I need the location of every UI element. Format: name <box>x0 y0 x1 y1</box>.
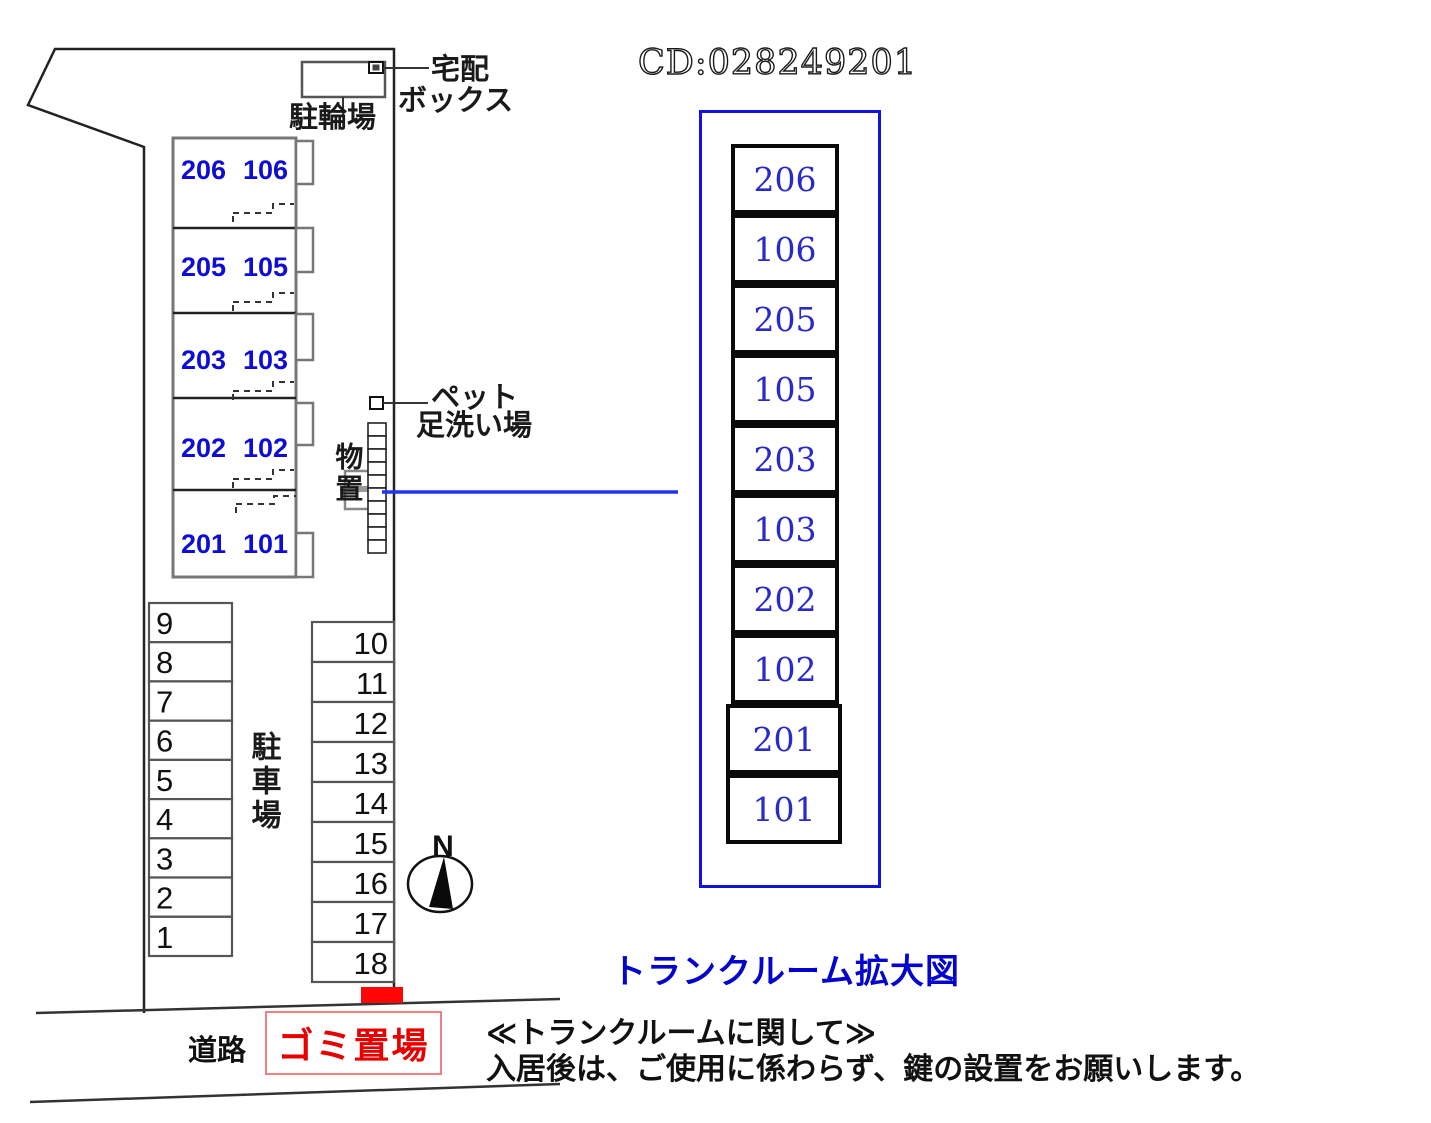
trunk-strip-cell <box>368 449 386 462</box>
trunk-strip-cell <box>368 488 386 501</box>
unit-number: 205 <box>181 252 226 283</box>
unit-porch <box>296 141 313 184</box>
trunk-view-cell-number: 203 <box>754 440 817 479</box>
unit-row-label: 201101 <box>173 529 296 559</box>
unit-number: 106 <box>243 155 288 186</box>
trunk-view-cell: 102 <box>731 634 839 704</box>
parking-stall-number: 10 <box>354 626 388 661</box>
road-lower-line <box>30 1084 560 1102</box>
site-plan-page: 987654321 101112131415161718 N CD:028249… <box>0 0 1431 1123</box>
parking-stall-number: 5 <box>156 763 173 798</box>
parking-lot-label: 駐車場 <box>247 731 279 833</box>
bicycle-parking-label: 駐輪場 <box>289 103 376 133</box>
unit-row-label: 205105 <box>173 252 296 282</box>
parking-stalls-right: 101112131415161718 <box>312 622 394 982</box>
trunk-view-cell: 103 <box>731 494 839 564</box>
trunk-view-cell: 202 <box>731 564 839 634</box>
trunk-view-cell: 203 <box>731 424 839 494</box>
compass-needle <box>429 857 453 909</box>
trunk-strip-cell <box>368 475 386 488</box>
parking-stall-number: 2 <box>156 881 173 916</box>
trunk-view-cell: 205 <box>731 284 839 354</box>
unit-number: 203 <box>181 345 226 376</box>
trunk-view-cell-number: 106 <box>754 230 817 269</box>
trunk-view-box: 206106205105203103202102201101 <box>699 110 881 888</box>
unit-porch <box>296 403 313 445</box>
parking-stall-number: 18 <box>354 946 388 981</box>
trunk-strip-cell <box>368 462 386 475</box>
parking-stall-number: 8 <box>156 645 173 680</box>
unit-number: 105 <box>243 252 288 283</box>
unit-number: 202 <box>181 433 226 464</box>
unit-row-label: 202102 <box>173 433 296 463</box>
parking-stall-number: 13 <box>354 746 388 781</box>
parking-stall-number: 1 <box>156 920 173 955</box>
trunk-note-body: 入居後は、ご使用に係わらず、鍵の設置をお願いします。 <box>486 1044 1260 1088</box>
parking-stall-number: 17 <box>354 906 388 941</box>
trunk-view-title: トランクルーム拡大図 <box>612 944 960 993</box>
parking-stall-number: 3 <box>156 841 173 876</box>
pet-wash-label-line1: ペット <box>431 383 518 413</box>
pet-wash-box <box>370 397 383 409</box>
trunk-view-cell-number: 206 <box>754 160 817 199</box>
unit-number: 102 <box>243 433 288 464</box>
trunk-view-cell: 105 <box>731 354 839 424</box>
parking-stall-number: 9 <box>156 606 173 641</box>
code-label: CD:028249201 <box>638 43 917 83</box>
parking-stall-number: 4 <box>156 802 173 837</box>
garbage-area-box: ゴミ置場 <box>265 1011 442 1075</box>
trunk-view-stack: 206106205105203103202102201101 <box>731 144 839 844</box>
unit-row-label: 203103 <box>173 345 296 375</box>
unit-porch <box>296 533 313 577</box>
trunk-view-cell: 206 <box>731 144 839 214</box>
trunk-view-cell-number: 205 <box>754 300 817 339</box>
parking-stall-number: 6 <box>156 724 173 759</box>
trunk-view-cell-number: 201 <box>753 720 816 759</box>
unit-porch <box>296 314 313 360</box>
trunk-view-cell-number: 102 <box>754 650 817 689</box>
delivery-box-label-line1: 宅配 <box>431 55 489 85</box>
trunk-strip-cell <box>368 514 386 527</box>
unit-number: 201 <box>181 529 226 560</box>
trunk-strip-cell <box>368 501 386 514</box>
delivery-box-label-line2: ボックス <box>398 86 513 116</box>
compass-icon: N <box>408 830 472 912</box>
pet-wash-label-line2: 足洗い場 <box>416 411 532 441</box>
delivery-box-icon-inner <box>373 65 380 71</box>
unit-porch <box>296 228 313 272</box>
garbage-marker <box>361 987 403 1003</box>
parking-stall-number: 14 <box>354 786 388 821</box>
garbage-area-label: ゴミ置場 <box>277 1017 429 1069</box>
storage-label: 物置 <box>333 442 362 506</box>
trunk-view-cell: 106 <box>731 214 839 284</box>
parking-stall-number: 7 <box>156 684 173 719</box>
trunk-view-cell-number: 103 <box>754 510 817 549</box>
compass-n-label: N <box>432 830 454 863</box>
road-label: 道路 <box>188 1036 246 1066</box>
trunk-room-strip <box>368 423 386 553</box>
trunk-view-cell: 101 <box>726 774 842 844</box>
parking-stall-number: 11 <box>356 666 388 701</box>
unit-number: 101 <box>243 529 288 560</box>
trunk-view-cell: 201 <box>726 704 842 774</box>
trunk-strip-cell <box>368 540 386 553</box>
parking-stall-number: 16 <box>354 866 388 901</box>
trunk-strip-cell <box>368 436 386 449</box>
trunk-strip-cell <box>368 527 386 540</box>
unit-number: 206 <box>181 155 226 186</box>
trunk-view-cell-number: 101 <box>753 790 816 829</box>
unit-row-label: 206106 <box>173 155 296 185</box>
parking-stall-number: 15 <box>354 826 388 861</box>
trunk-view-cell-number: 202 <box>754 580 817 619</box>
parking-stalls-left: 987654321 <box>149 603 232 956</box>
trunk-strip-cell <box>368 423 386 436</box>
unit-number: 103 <box>243 345 288 376</box>
trunk-view-cell-number: 105 <box>754 370 817 409</box>
parking-stall-number: 12 <box>354 706 388 741</box>
